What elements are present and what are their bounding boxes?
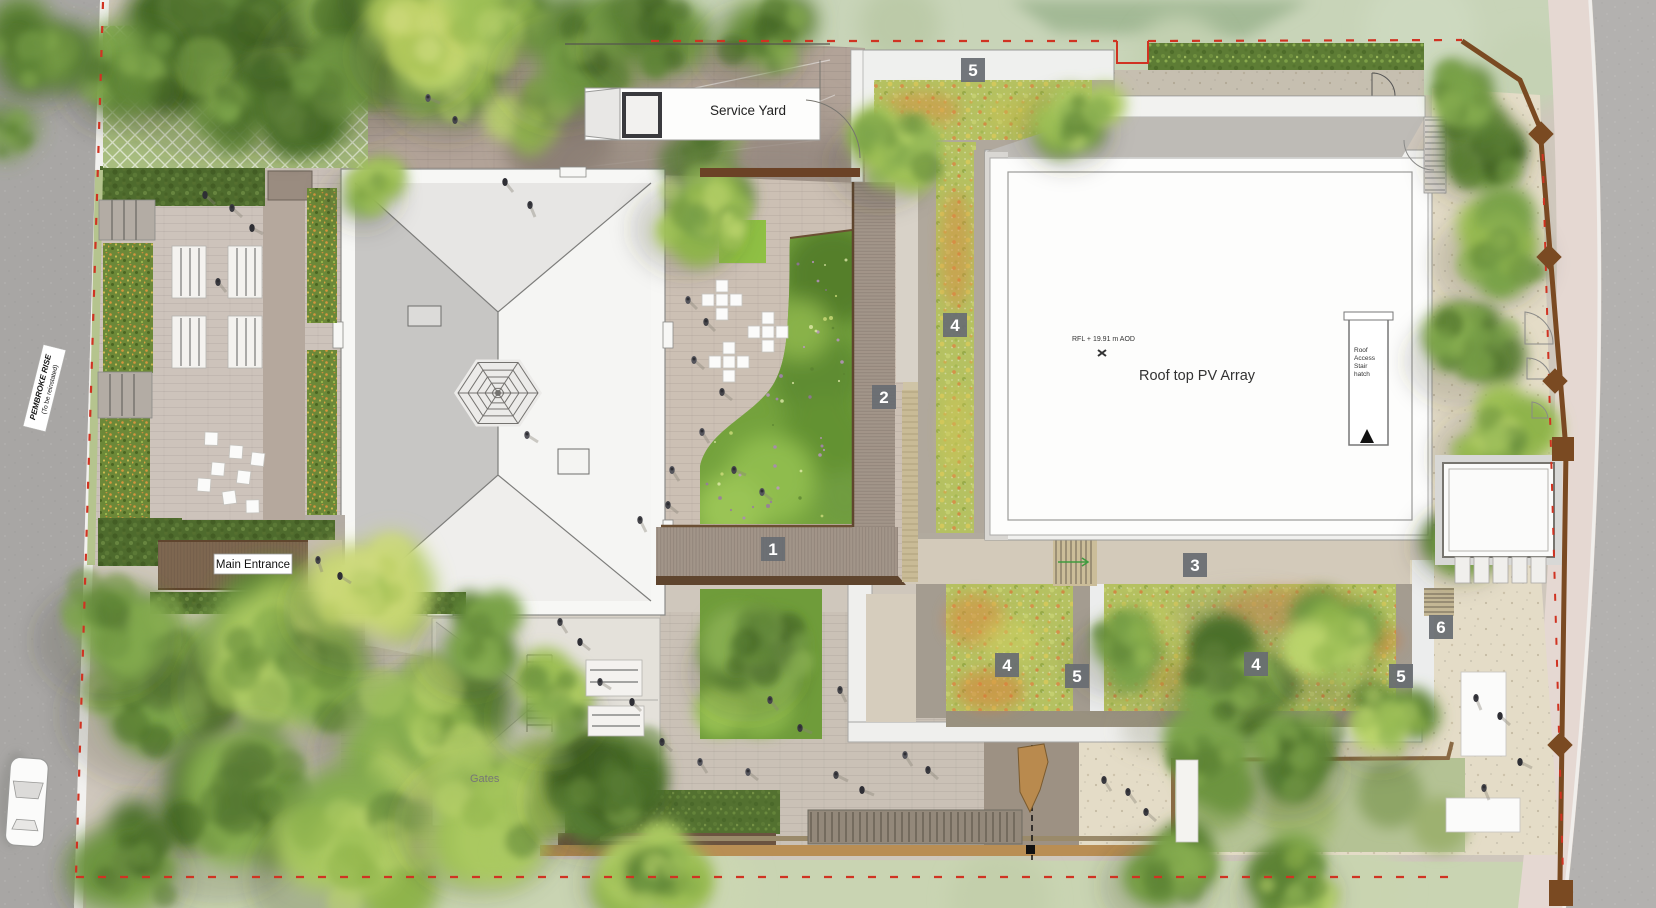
svg-text:5: 5 [1396, 667, 1405, 686]
svg-text:4: 4 [1002, 656, 1012, 675]
svg-text:Service Yard: Service Yard [710, 103, 786, 118]
svg-text:Stair: Stair [1354, 363, 1368, 370]
svg-text:5: 5 [1072, 667, 1081, 686]
svg-text:4: 4 [950, 316, 960, 335]
svg-text:Roof top PV Array: Roof top PV Array [1139, 368, 1256, 384]
svg-text:RFL + 19.91 m AOD: RFL + 19.91 m AOD [1072, 336, 1135, 343]
svg-text:3: 3 [1190, 556, 1199, 575]
svg-text:2: 2 [879, 388, 888, 407]
svg-text:4: 4 [1251, 655, 1261, 674]
svg-text:Main Entrance: Main Entrance [216, 559, 290, 571]
svg-text:1: 1 [768, 540, 777, 559]
svg-text:6: 6 [1436, 618, 1445, 637]
svg-text:Gates: Gates [470, 773, 500, 785]
svg-text:5: 5 [968, 61, 977, 80]
svg-text:hatch: hatch [1354, 371, 1370, 378]
svg-text:Roof: Roof [1354, 347, 1368, 354]
svg-text:Access: Access [1354, 355, 1376, 362]
